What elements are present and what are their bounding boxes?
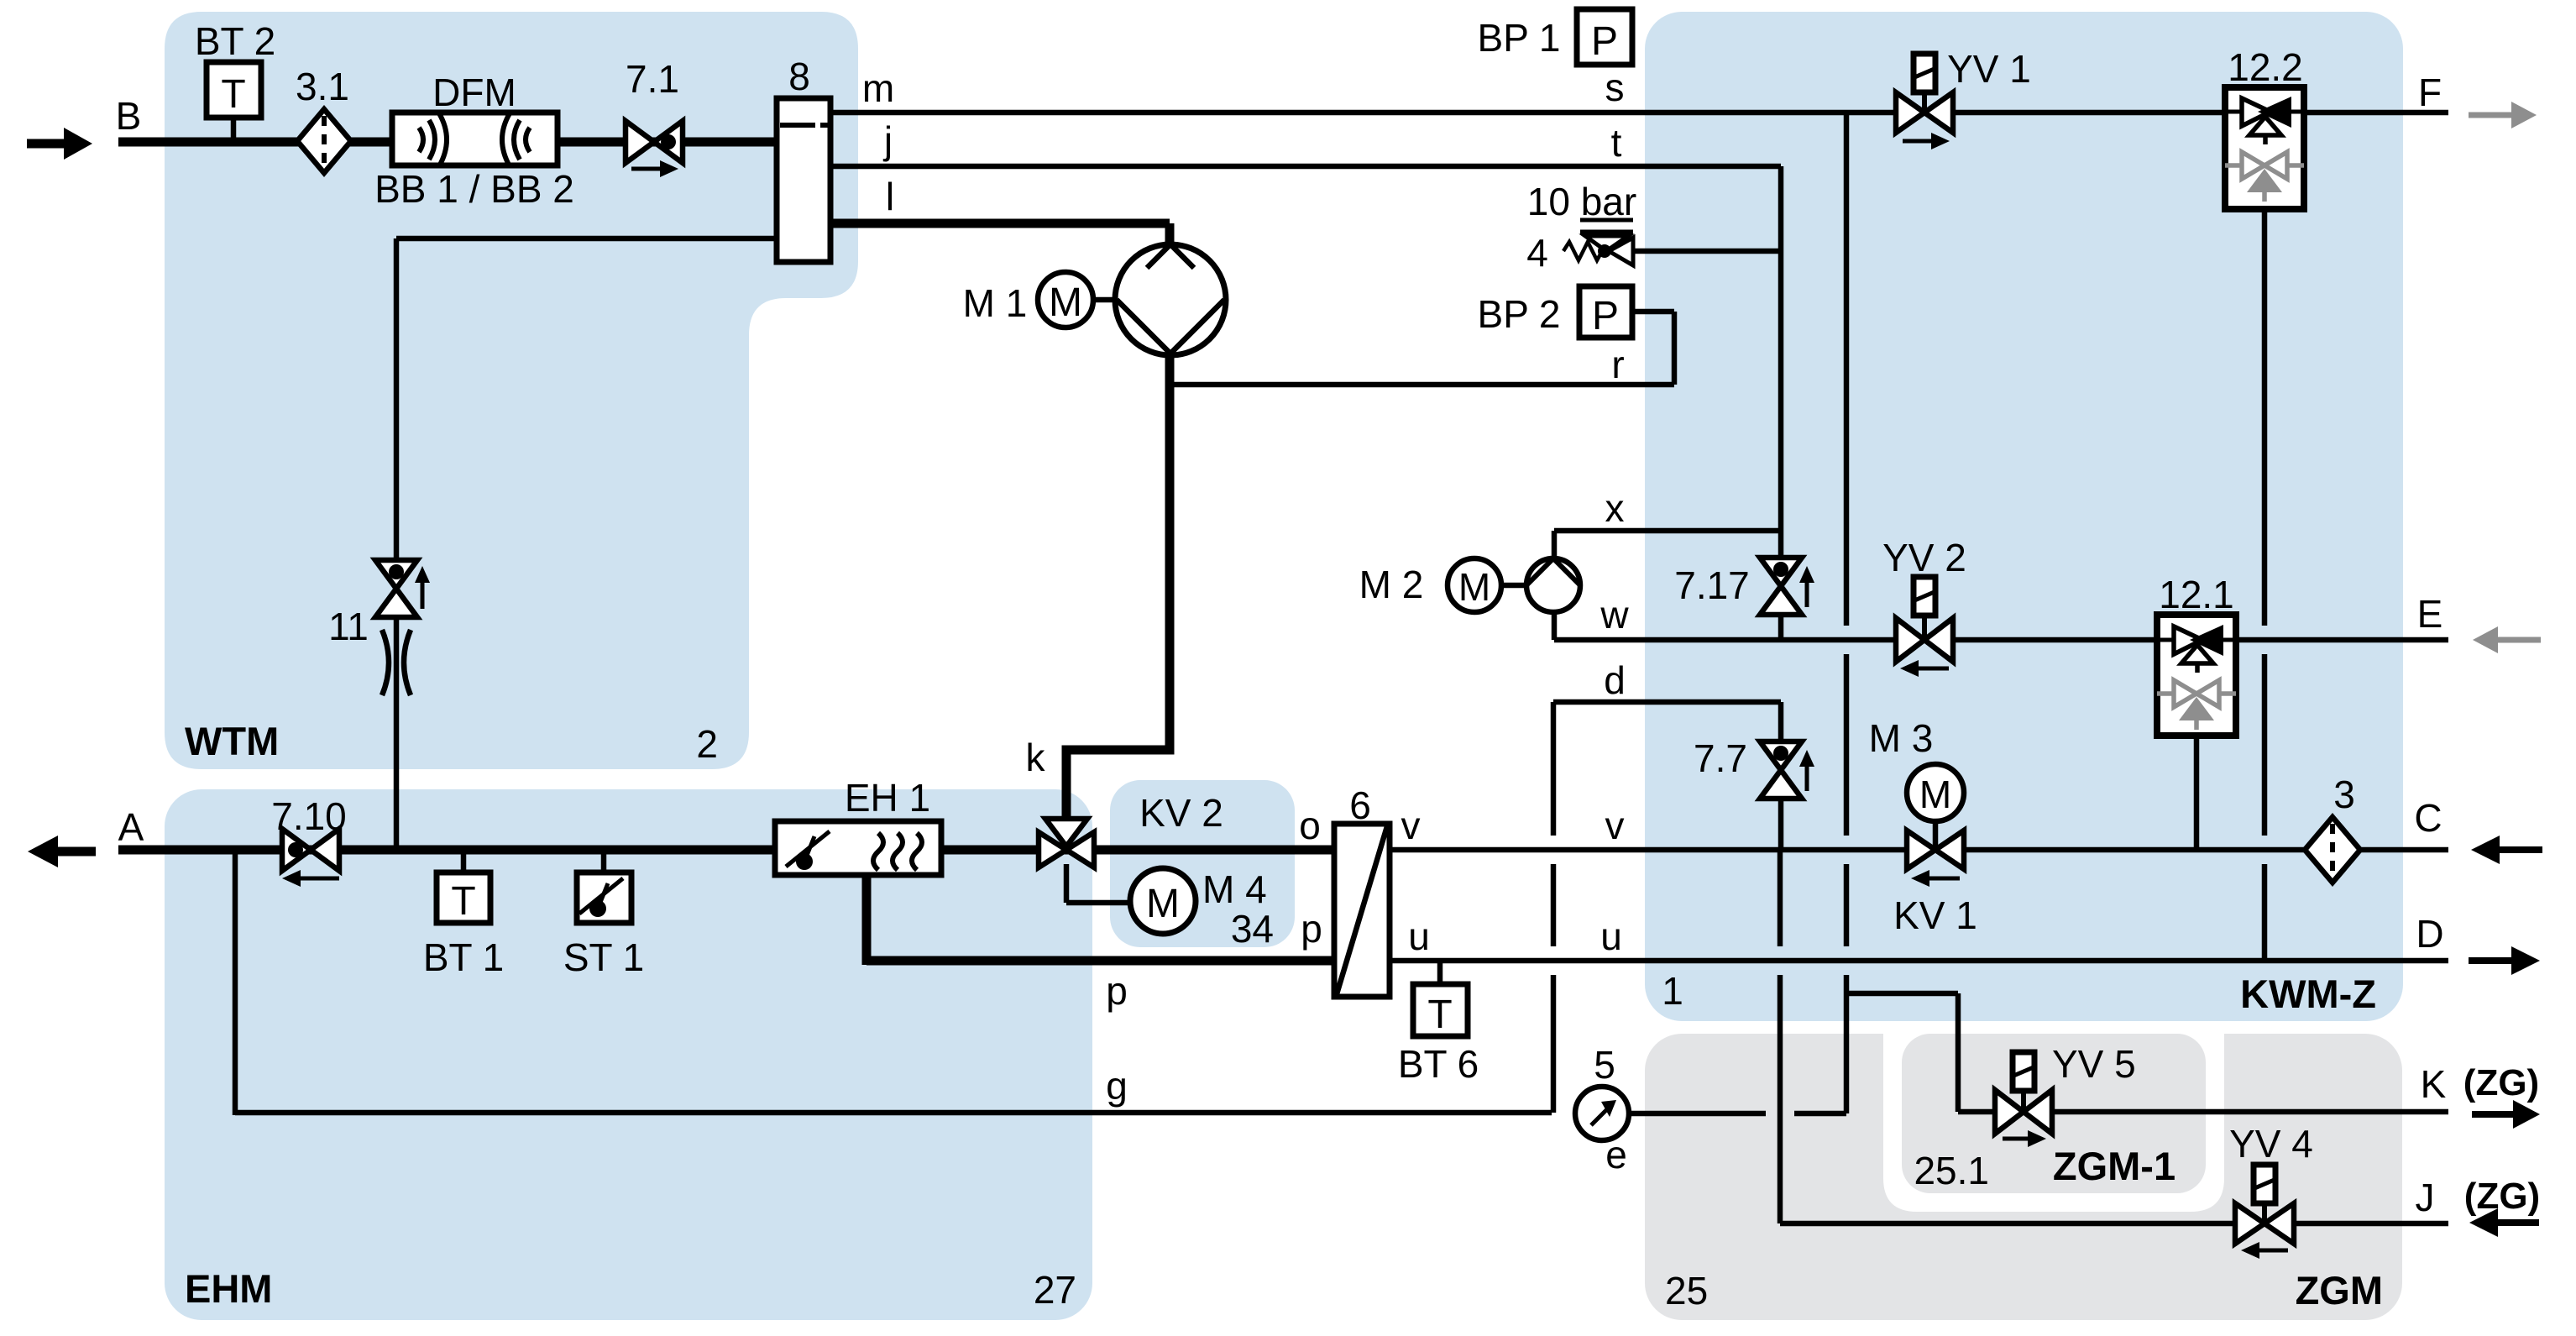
svg-text:x: x	[1605, 486, 1625, 530]
svg-text:2: 2	[696, 722, 718, 766]
svg-text:v: v	[1401, 804, 1421, 847]
svg-text:25.1: 25.1	[1914, 1149, 1989, 1192]
svg-text:6: 6	[1349, 783, 1371, 827]
svg-text:EH 1: EH 1	[845, 776, 930, 820]
svg-text:KWM-Z: KWM-Z	[2240, 972, 2376, 1016]
svg-text:1: 1	[1662, 969, 1683, 1013]
svg-text:7.7: 7.7	[1694, 736, 1747, 780]
svg-text:s: s	[1605, 65, 1625, 109]
svg-text:p: p	[1301, 907, 1322, 951]
svg-text:7.17: 7.17	[1674, 563, 1750, 607]
svg-text:11: 11	[328, 605, 369, 648]
svg-text:YV 4: YV 4	[2229, 1122, 2313, 1166]
svg-text:r: r	[1611, 343, 1624, 386]
svg-text:w: w	[1600, 593, 1629, 637]
svg-text:P: P	[1591, 19, 1618, 64]
svg-text:m: m	[862, 66, 894, 110]
svg-text:ZGM-1: ZGM-1	[2053, 1144, 2175, 1188]
svg-text:ZGM: ZGM	[2296, 1268, 2383, 1312]
svg-text:27: 27	[1034, 1268, 1076, 1312]
svg-text:u: u	[1600, 914, 1622, 958]
svg-text:EHM: EHM	[185, 1266, 272, 1311]
svg-text:g: g	[1106, 1064, 1128, 1108]
svg-text:T: T	[451, 879, 475, 924]
svg-text:BB 1 / BB 2: BB 1 / BB 2	[374, 167, 574, 211]
svg-text:T: T	[221, 72, 245, 117]
svg-text:25: 25	[1665, 1269, 1708, 1312]
svg-text:j: j	[882, 118, 893, 162]
svg-text:YV 2: YV 2	[1882, 536, 1966, 579]
svg-text:7.10: 7.10	[271, 794, 347, 838]
svg-text:B: B	[116, 94, 142, 138]
svg-text:DFM: DFM	[432, 71, 516, 114]
svg-text:KV 2: KV 2	[1139, 791, 1223, 835]
svg-text:BT 6: BT 6	[1398, 1042, 1479, 1086]
svg-text:A: A	[118, 805, 144, 849]
svg-text:p: p	[1106, 969, 1128, 1013]
svg-text:M: M	[1919, 773, 1951, 816]
svg-text:E: E	[2417, 592, 2443, 636]
svg-text:10 bar: 10 bar	[1527, 180, 1636, 223]
svg-text:J: J	[2416, 1176, 2435, 1219]
svg-text:BT 1: BT 1	[423, 935, 504, 979]
svg-text:u: u	[1408, 914, 1430, 958]
svg-text:M 1: M 1	[963, 281, 1028, 325]
svg-text:12.1: 12.1	[2159, 573, 2234, 616]
svg-text:M: M	[1146, 882, 1180, 926]
svg-text:3: 3	[2333, 773, 2355, 816]
svg-text:K: K	[2421, 1062, 2447, 1106]
svg-text:KV 1: KV 1	[1893, 893, 1977, 937]
svg-text:M: M	[1458, 565, 1490, 609]
svg-text:5: 5	[1594, 1043, 1615, 1087]
svg-text:YV 5: YV 5	[2052, 1042, 2136, 1086]
svg-text:P: P	[1592, 294, 1619, 338]
svg-text:k: k	[1026, 736, 1046, 779]
svg-text:12.2: 12.2	[2228, 45, 2303, 89]
svg-text:8: 8	[788, 55, 810, 98]
svg-text:(ZG): (ZG)	[2463, 1062, 2539, 1103]
svg-text:M 3: M 3	[1869, 716, 1934, 760]
svg-text:v: v	[1605, 804, 1625, 847]
svg-text:d: d	[1604, 658, 1626, 702]
svg-text:ST 1: ST 1	[563, 935, 644, 979]
svg-text:(ZG): (ZG)	[2464, 1176, 2540, 1217]
svg-text:C: C	[2414, 796, 2442, 840]
svg-text:M 2: M 2	[1359, 563, 1424, 606]
svg-text:BP 1: BP 1	[1478, 16, 1561, 60]
svg-text:3.1: 3.1	[296, 65, 349, 108]
svg-text:M 4: M 4	[1202, 867, 1267, 911]
svg-text:BT 2: BT 2	[195, 19, 275, 63]
svg-text:4: 4	[1526, 231, 1548, 275]
svg-text:BP 2: BP 2	[1478, 292, 1561, 336]
svg-text:l: l	[886, 175, 894, 218]
svg-text:T: T	[1427, 993, 1452, 1037]
svg-text:o: o	[1299, 804, 1321, 847]
svg-text:7.1: 7.1	[626, 57, 679, 101]
svg-text:D: D	[2416, 912, 2443, 956]
svg-text:e: e	[1605, 1133, 1627, 1176]
svg-text:YV 1: YV 1	[1947, 47, 2031, 91]
svg-text:F: F	[2418, 71, 2442, 114]
svg-text:WTM: WTM	[185, 719, 279, 763]
svg-text:M: M	[1049, 280, 1082, 325]
svg-text:t: t	[1611, 121, 1622, 165]
svg-text:34: 34	[1231, 907, 1274, 951]
